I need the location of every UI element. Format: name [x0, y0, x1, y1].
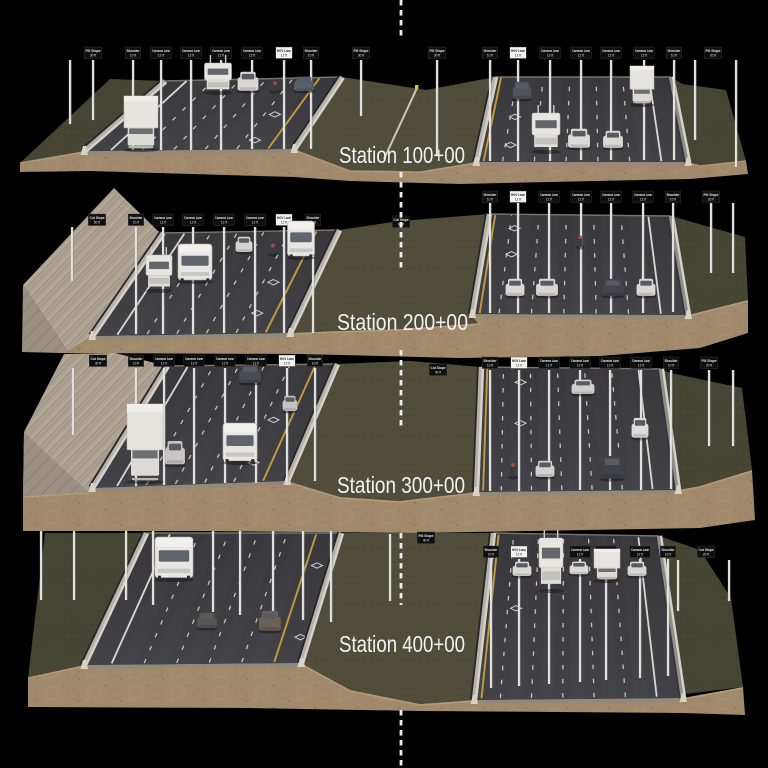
svg-text:12 ft: 12 ft: [161, 362, 167, 366]
svg-text:Shoulder: Shoulder: [305, 49, 319, 53]
svg-text:12 ft: 12 ft: [577, 553, 583, 557]
svg-text:10 ft: 10 ft: [488, 553, 494, 557]
svg-text:12 ft: 12 ft: [578, 198, 584, 202]
svg-text:12 ft: 12 ft: [577, 364, 583, 368]
svg-text:HOV Lane: HOV Lane: [277, 49, 291, 53]
svg-text:Fill Slope: Fill Slope: [706, 49, 721, 53]
svg-text:HOV Lane: HOV Lane: [280, 357, 294, 361]
svg-text:10 ft: 10 ft: [308, 54, 314, 58]
svg-text:Common Lane: Common Lane: [246, 216, 264, 220]
svg-text:Shoulder: Shoulder: [130, 357, 144, 361]
svg-text:Shoulder: Shoulder: [484, 359, 498, 363]
svg-text:Cut Slope: Cut Slope: [431, 366, 446, 370]
svg-text:12 ft: 12 ft: [515, 198, 521, 202]
svg-text:12 ft: 12 ft: [637, 553, 643, 557]
svg-text:Common Lane: Common Lane: [184, 216, 202, 220]
svg-text:12 ft: 12 ft: [638, 364, 644, 368]
svg-text:Fill Slope: Fill Slope: [430, 49, 445, 53]
svg-text:Common Lane: Common Lane: [540, 193, 558, 197]
svg-text:Common Lane: Common Lane: [182, 49, 200, 53]
svg-text:Common Lane: Common Lane: [154, 216, 172, 220]
svg-text:HOV Lane: HOV Lane: [512, 548, 526, 552]
svg-text:20 ft: 20 ft: [706, 364, 712, 368]
svg-text:50 ft: 50 ft: [94, 221, 100, 225]
svg-text:Cut Slope: Cut Slope: [91, 357, 106, 361]
svg-text:Shoulder: Shoulder: [127, 49, 141, 53]
svg-text:Common Lane: Common Lane: [540, 359, 558, 363]
svg-text:Shoulder: Shoulder: [667, 193, 681, 197]
svg-text:12 ft: 12 ft: [578, 54, 584, 58]
svg-text:10 ft: 10 ft: [670, 198, 676, 202]
svg-text:Shoulder: Shoulder: [485, 548, 499, 552]
svg-text:Common Lane: Common Lane: [152, 49, 170, 53]
svg-text:HOV Lane: HOV Lane: [511, 193, 525, 197]
svg-text:30 ft: 30 ft: [90, 54, 96, 58]
svg-text:30 ft: 30 ft: [434, 54, 440, 58]
svg-text:Common Lane: Common Lane: [155, 357, 173, 361]
svg-text:Station 400+00: Station 400+00: [339, 631, 465, 657]
svg-text:Common Lane: Common Lane: [571, 359, 589, 363]
svg-text:12 ft: 12 ft: [252, 221, 258, 225]
svg-text:12 ft: 12 ft: [284, 362, 290, 366]
svg-text:12 ft: 12 ft: [191, 362, 197, 366]
svg-text:Fill Slope: Fill Slope: [86, 49, 101, 53]
svg-text:12 ft: 12 ft: [608, 198, 614, 202]
svg-text:12 ft: 12 ft: [160, 221, 166, 225]
svg-text:12 ft: 12 ft: [158, 54, 164, 58]
svg-text:HOV Lane: HOV Lane: [277, 216, 291, 220]
svg-text:Shoulder: Shoulder: [665, 359, 679, 363]
svg-text:Shoulder: Shoulder: [309, 357, 323, 361]
svg-text:20 ft: 20 ft: [703, 553, 709, 557]
svg-text:10 ft: 10 ft: [130, 54, 136, 58]
svg-text:Shoulder: Shoulder: [484, 193, 498, 197]
svg-text:10 ft: 10 ft: [487, 198, 493, 202]
svg-text:Common Lane: Common Lane: [602, 49, 620, 53]
svg-text:Common Lane: Common Lane: [632, 359, 650, 363]
svg-text:10 ft: 10 ft: [133, 362, 139, 366]
svg-text:12 ft: 12 ft: [515, 54, 521, 58]
svg-text:10 ft: 10 ft: [671, 54, 677, 58]
svg-text:12 ft: 12 ft: [249, 54, 255, 58]
svg-text:12 ft: 12 ft: [547, 54, 553, 58]
svg-text:Station 200+00: Station 200+00: [337, 309, 468, 335]
svg-text:10 ft: 10 ft: [133, 221, 139, 225]
svg-text:Common Lane: Common Lane: [212, 49, 230, 53]
svg-text:Fill Slope: Fill Slope: [419, 534, 434, 538]
svg-text:Common Lane: Common Lane: [247, 357, 265, 361]
svg-text:20 ft: 20 ft: [710, 54, 716, 58]
svg-text:12 ft: 12 ft: [546, 364, 552, 368]
svg-text:12 ft: 12 ft: [190, 221, 196, 225]
svg-text:12 ft: 12 ft: [218, 54, 224, 58]
svg-text:Common Lane: Common Lane: [572, 193, 590, 197]
svg-text:10 ft: 10 ft: [668, 364, 674, 368]
svg-text:Shoulder: Shoulder: [662, 548, 676, 552]
svg-text:12 ft: 12 ft: [640, 198, 646, 202]
svg-text:12 ft: 12 ft: [546, 198, 552, 202]
svg-text:Common Lane: Common Lane: [215, 216, 233, 220]
svg-text:Shoulder: Shoulder: [307, 216, 321, 220]
svg-text:40 ft: 40 ft: [435, 371, 441, 375]
svg-text:12 ft: 12 ft: [281, 221, 287, 225]
svg-text:20 ft: 20 ft: [708, 198, 714, 202]
svg-text:Common Lane: Common Lane: [243, 49, 261, 53]
svg-text:Shoulder: Shoulder: [130, 216, 144, 220]
svg-text:40 ft: 40 ft: [423, 539, 429, 543]
svg-text:12 ft: 12 ft: [188, 54, 194, 58]
svg-text:HOV Lane: HOV Lane: [511, 49, 525, 53]
svg-text:12 ft: 12 ft: [608, 54, 614, 58]
svg-text:12 ft: 12 ft: [516, 364, 522, 368]
svg-text:30 ft: 30 ft: [358, 54, 364, 58]
svg-text:Fill Slope: Fill Slope: [354, 49, 369, 53]
svg-text:10 ft: 10 ft: [312, 362, 318, 366]
svg-text:HOV Lane: HOV Lane: [512, 359, 526, 363]
svg-text:12 ft: 12 ft: [607, 364, 613, 368]
svg-text:Common Lane: Common Lane: [634, 193, 652, 197]
svg-text:Fill Slope: Fill Slope: [704, 193, 719, 197]
svg-text:Fill Slope: Fill Slope: [702, 359, 717, 363]
svg-text:Station 100+00: Station 100+00: [339, 142, 465, 168]
svg-text:Common Lane: Common Lane: [631, 548, 649, 552]
svg-text:Cut Slope: Cut Slope: [90, 216, 105, 220]
svg-text:Cut Slope: Cut Slope: [394, 218, 409, 222]
svg-text:Common Lane: Common Lane: [602, 193, 620, 197]
svg-text:Shoulder: Shoulder: [668, 49, 682, 53]
svg-text:Common Lane: Common Lane: [185, 357, 203, 361]
svg-text:Shoulder: Shoulder: [484, 49, 498, 53]
svg-text:12 ft: 12 ft: [641, 54, 647, 58]
svg-text:Common Lane: Common Lane: [572, 49, 590, 53]
svg-text:12 ft: 12 ft: [221, 221, 227, 225]
svg-text:30 ft: 30 ft: [95, 362, 101, 366]
svg-text:Station 300+00: Station 300+00: [337, 472, 465, 498]
svg-text:12 ft: 12 ft: [516, 553, 522, 557]
svg-text:12 ft: 12 ft: [222, 362, 228, 366]
svg-text:10 ft: 10 ft: [665, 553, 671, 557]
svg-text:Cut Slope: Cut Slope: [699, 548, 714, 552]
svg-text:Common Lane: Common Lane: [571, 548, 589, 552]
svg-text:Common Lane: Common Lane: [635, 49, 653, 53]
svg-text:10 ft: 10 ft: [487, 54, 493, 58]
svg-text:12 ft: 12 ft: [281, 54, 287, 58]
svg-text:Common Lane: Common Lane: [216, 357, 234, 361]
svg-text:Common Lane: Common Lane: [541, 49, 559, 53]
svg-text:10 ft: 10 ft: [487, 364, 493, 368]
svg-text:Common Lane: Common Lane: [601, 359, 619, 363]
